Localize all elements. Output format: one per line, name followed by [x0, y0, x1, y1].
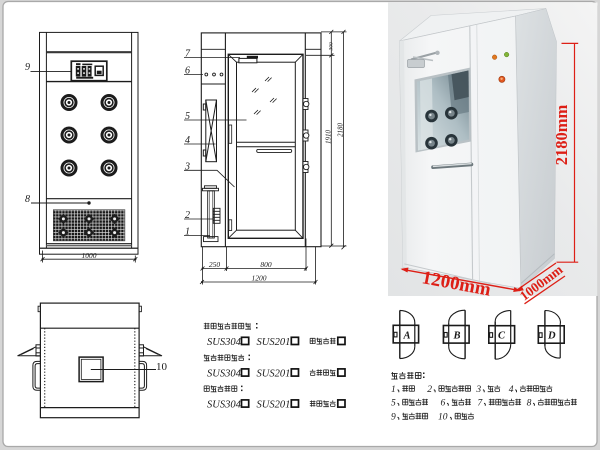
svg-text:10: 10: [156, 361, 168, 373]
svg-text:2: 2: [427, 385, 432, 395]
svg-text:5: 5: [391, 399, 396, 409]
svg-text:250: 250: [209, 260, 221, 269]
svg-text:1200: 1200: [252, 274, 267, 283]
svg-text:4: 4: [185, 135, 190, 146]
svg-text:A: A: [403, 330, 411, 341]
svg-text:SUS304: SUS304: [207, 337, 242, 348]
svg-text:B: B: [453, 330, 461, 341]
svg-text:1000: 1000: [82, 251, 97, 260]
svg-text:300: 300: [329, 42, 335, 52]
svg-text:9: 9: [25, 62, 30, 73]
svg-text:SUS201: SUS201: [257, 369, 291, 380]
svg-text:9: 9: [391, 413, 396, 423]
svg-text:2180mm: 2180mm: [552, 105, 571, 166]
svg-text:1910: 1910: [324, 130, 332, 145]
svg-text:5: 5: [185, 111, 190, 122]
svg-text:6: 6: [441, 399, 446, 409]
svg-text:SUS304: SUS304: [207, 369, 242, 380]
svg-text:8: 8: [25, 194, 30, 205]
svg-text:2180: 2180: [336, 123, 344, 138]
svg-text:SUS201: SUS201: [257, 400, 291, 411]
svg-text:SUS201: SUS201: [257, 337, 291, 348]
svg-text:SUS304: SUS304: [207, 400, 242, 411]
svg-text:1: 1: [391, 385, 396, 395]
svg-text:10: 10: [438, 413, 448, 423]
svg-text:800: 800: [260, 260, 272, 269]
svg-text:3: 3: [184, 162, 190, 173]
svg-text:2: 2: [185, 210, 190, 221]
svg-text:C: C: [498, 330, 506, 341]
svg-text:8: 8: [527, 399, 532, 409]
svg-text:6: 6: [185, 66, 190, 77]
svg-text:3: 3: [475, 385, 481, 395]
svg-text:D: D: [547, 330, 556, 341]
svg-text:1: 1: [185, 227, 190, 238]
svg-text:4: 4: [509, 385, 514, 395]
